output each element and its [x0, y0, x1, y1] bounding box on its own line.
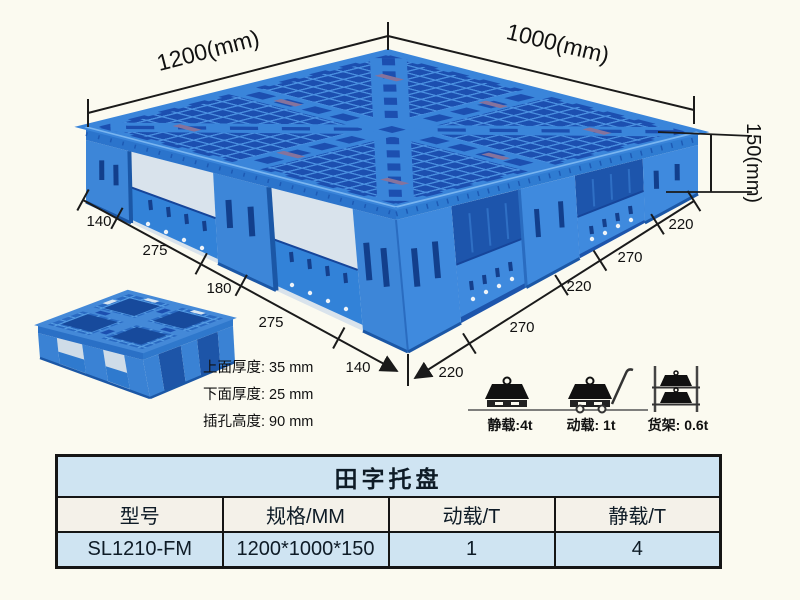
dim-segment-label: 270: [509, 319, 534, 336]
dim-segment-label: 220: [566, 278, 591, 295]
spec-table: 田字托盘 型号 规格/MM 动载/T 静载/T SL1210-FM 1200*1…: [55, 454, 722, 569]
dim-segment-label: 275: [258, 314, 283, 331]
spec-table-header-row: 型号 规格/MM 动载/T 静载/T: [57, 497, 721, 532]
cell-model: SL1210-FM: [57, 532, 223, 568]
rack-load-label: 货架: 0.6t: [647, 417, 709, 433]
cell-spec: 1200*1000*150: [223, 532, 389, 568]
note-top-thickness: 上面厚度: 35 mm: [203, 359, 313, 376]
static-load-label: 静载:4t: [487, 417, 532, 433]
header-static-load: 静载/T: [555, 497, 721, 532]
dynamic-load-icon: [568, 369, 633, 412]
dim-1200-label: 1200(mm): [154, 25, 262, 76]
dim-segment-label: 270: [617, 249, 642, 266]
pallet-diagram: 1200(mm) 1000(mm) 150(mm) 140 275 180 27…: [0, 0, 800, 455]
spec-table-title: 田字托盘: [57, 456, 721, 498]
static-load-icon: [485, 378, 529, 408]
header-spec: 规格/MM: [223, 497, 389, 532]
dim-segment-label: 275: [142, 242, 167, 259]
pallet-product-sheet: 1200(mm) 1000(mm) 150(mm) 140 275 180 27…: [0, 0, 800, 600]
header-dynamic-load: 动载/T: [389, 497, 555, 532]
cell-dynamic-load: 1: [389, 532, 555, 568]
spec-table-data-row: SL1210-FM 1200*1000*150 1 4: [57, 532, 721, 568]
load-capacity-icons: 静载:4t 动载: 1t 货架: 0.6t: [468, 366, 709, 433]
rack-load-icon: [652, 366, 700, 412]
dim-segment-label: 140: [86, 213, 111, 230]
dim-segment-label: 140: [345, 359, 370, 376]
dim-segment-label: 180: [206, 280, 231, 297]
header-model: 型号: [57, 497, 223, 532]
dim-150-label: 150(mm): [742, 123, 764, 203]
note-hole-height: 插孔高度: 90 mm: [203, 413, 313, 430]
spec-table-title-row: 田字托盘: [57, 456, 721, 498]
load-labels: 静载:4t 动载: 1t 货架: 0.6t: [487, 417, 708, 433]
thickness-notes: 上面厚度: 35 mm 下面厚度: 25 mm 插孔高度: 90 mm: [203, 359, 313, 430]
dynamic-load-label: 动载: 1t: [567, 417, 616, 433]
cell-static-load: 4: [555, 532, 721, 568]
dim-segment-label: 220: [668, 216, 693, 233]
dim-segment-label: 220: [438, 364, 463, 381]
note-bottom-thickness: 下面厚度: 25 mm: [203, 386, 313, 403]
small-pallet-image: [38, 291, 235, 398]
dim-1000-label: 1000(mm): [504, 18, 612, 68]
